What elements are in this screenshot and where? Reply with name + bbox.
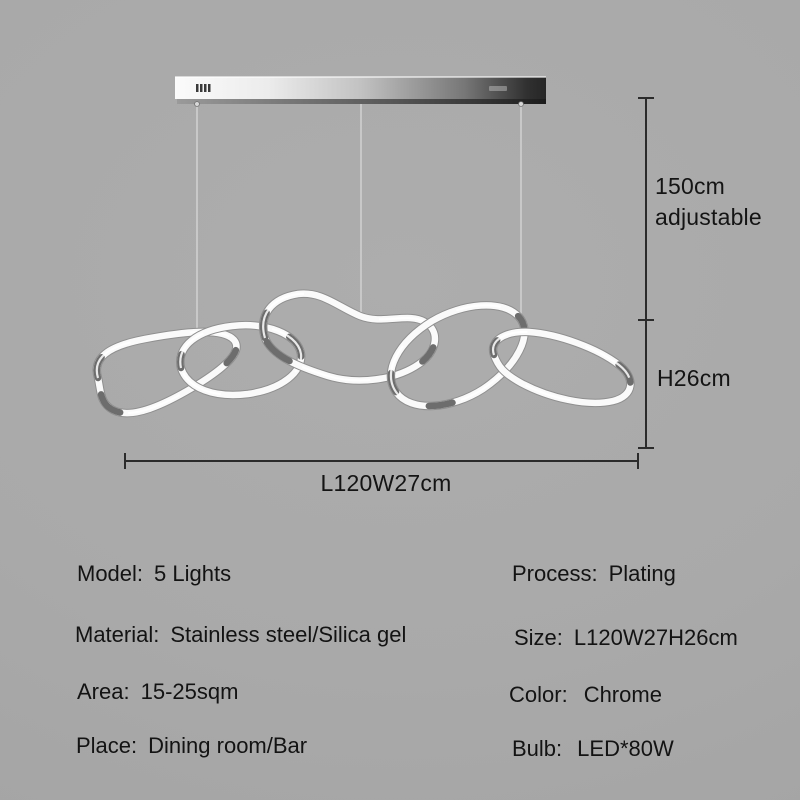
- product-image: 150cm adjustable H26cm L120W27cm Model:5…: [0, 0, 800, 800]
- light-rings: [97, 294, 631, 413]
- spec-size: Size:L120W27H26cm: [514, 625, 738, 651]
- spec-color: Color:Chrome: [509, 682, 662, 708]
- drop-length-label: 150cm adjustable: [655, 171, 762, 233]
- spec-place-value: Dining room/Bar: [148, 733, 307, 758]
- spec-area: Area:15-25sqm: [77, 679, 238, 705]
- spec-place: Place:Dining room/Bar: [76, 733, 307, 759]
- spec-process-label: Process:: [512, 561, 598, 586]
- ceiling-bar: [175, 76, 546, 106]
- ring-5: [493, 332, 630, 403]
- spec-color-label: Color:: [509, 682, 568, 707]
- ring-1: [97, 332, 237, 413]
- spec-bulb-label: Bulb:: [512, 736, 562, 761]
- spec-bulb: Bulb:LED*80W: [512, 736, 674, 762]
- spec-size-value: L120W27H26cm: [574, 625, 738, 650]
- spec-model-value: 5 Lights: [154, 561, 231, 586]
- spec-material-value: Stainless steel/Silica gel: [170, 622, 406, 647]
- ceiling-bar-highlight: [175, 76, 546, 78]
- spec-process: Process:Plating: [512, 561, 676, 587]
- fixture-height-label: H26cm: [657, 365, 731, 392]
- spec-color-value: Chrome: [584, 682, 662, 707]
- spec-material-label: Material:: [75, 622, 159, 647]
- ceiling-bar-underside: [177, 99, 546, 104]
- spec-place-label: Place:: [76, 733, 137, 758]
- brand-mark: [489, 86, 507, 91]
- drop-length-note: adjustable: [655, 202, 762, 233]
- spec-area-label: Area:: [77, 679, 130, 704]
- fixture-width-label: L120W27cm: [256, 470, 516, 497]
- spec-model-label: Model:: [77, 561, 143, 586]
- spec-material: Material:Stainless steel/Silica gel: [75, 622, 406, 648]
- wire-connector-left: [195, 102, 200, 107]
- dimension-lines: [125, 98, 654, 469]
- spec-size-label: Size:: [514, 625, 563, 650]
- wire-connector-right: [519, 102, 524, 107]
- spec-process-value: Plating: [609, 561, 676, 586]
- spec-model: Model:5 Lights: [77, 561, 231, 587]
- drop-length-value: 150cm: [655, 171, 762, 202]
- spec-area-value: 15-25sqm: [141, 679, 239, 704]
- spec-bulb-value: LED*80W: [577, 736, 674, 761]
